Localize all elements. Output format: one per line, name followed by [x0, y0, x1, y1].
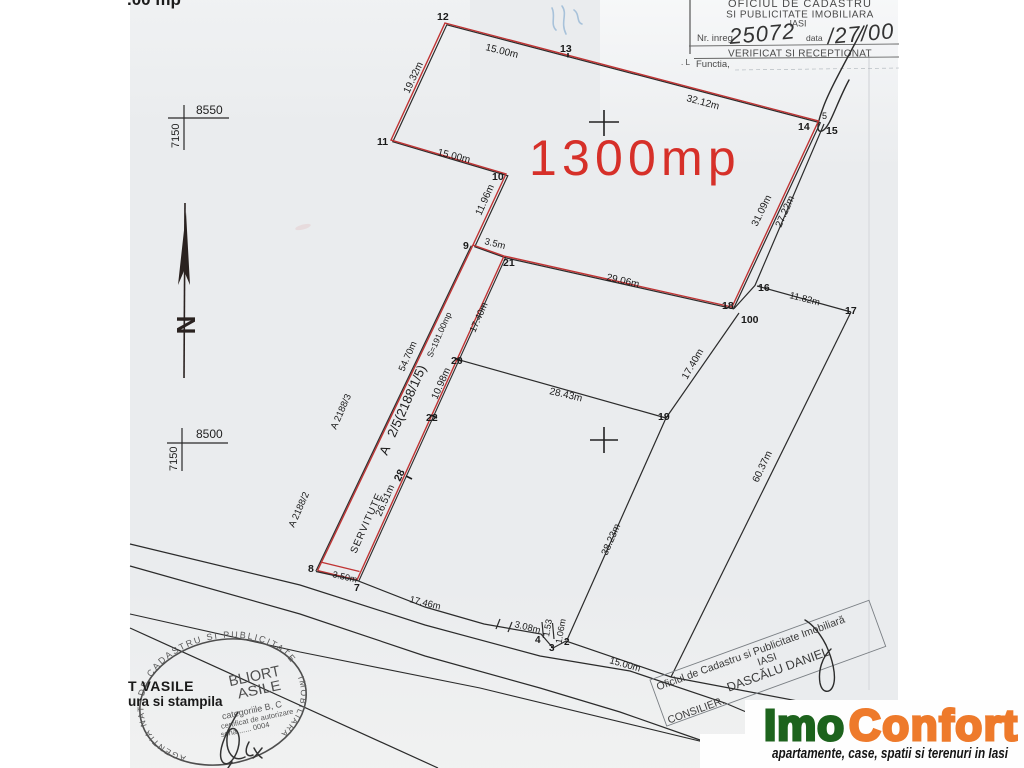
svg-text:22: 22	[426, 412, 438, 424]
svg-text:11: 11	[377, 136, 388, 148]
svg-text:15.00m: 15.00m	[436, 147, 471, 166]
svg-text:Nr. inreg: Nr. inreg	[697, 33, 733, 44]
svg-text:60.37m: 60.37m	[751, 449, 775, 484]
svg-text:17.46m: 17.46m	[408, 594, 441, 612]
svg-text:10.98m: 10.98m	[430, 366, 454, 401]
svg-text:17.40m: 17.40m	[680, 347, 706, 381]
svg-text:14: 14	[798, 121, 810, 133]
svg-text:32.12m: 32.12m	[685, 93, 720, 112]
svg-text:28.43m: 28.43m	[548, 386, 583, 404]
svg-text:Imo: Imo	[764, 701, 844, 750]
svg-text:1.53: 1.53	[541, 618, 554, 637]
svg-text:3.50m: 3.50m	[332, 569, 359, 584]
svg-text:A 2188/3: A 2188/3	[329, 392, 354, 431]
svg-text:16: 16	[758, 282, 770, 294]
svg-text:Functia,: Functia,	[696, 59, 730, 70]
svg-text:3.08m: 3.08m	[513, 619, 541, 636]
svg-text:9: 9	[463, 240, 469, 252]
svg-text:8500: 8500	[196, 427, 223, 441]
svg-text:7150: 7150	[170, 124, 182, 148]
svg-text:15.00m: 15.00m	[484, 42, 519, 61]
svg-text:5: 5	[822, 111, 827, 121]
svg-text:12: 12	[437, 11, 449, 23]
svg-text:18: 18	[722, 300, 734, 312]
svg-text:CONSILIER.: CONSILIER.	[666, 695, 726, 727]
svg-text:N: N	[171, 316, 201, 335]
svg-text:Confort: Confort	[849, 701, 1017, 750]
svg-text:8550: 8550	[196, 103, 223, 117]
svg-text:17: 17	[845, 305, 857, 317]
svg-text:. L: . L	[681, 58, 690, 67]
svg-text:1300mp: 1300mp	[529, 130, 741, 186]
svg-text:7150: 7150	[168, 447, 180, 471]
svg-text:20: 20	[451, 355, 463, 367]
svg-text:27.22m: 27.22m	[774, 194, 798, 229]
svg-text:21: 21	[503, 257, 515, 269]
svg-text:apartamente, case, spatii si t: apartamente, case, spatii si terenuri in…	[772, 745, 1009, 762]
svg-text:data: data	[806, 33, 823, 43]
svg-text:.00 mp: .00 mp	[127, 0, 181, 9]
svg-text:100: 100	[741, 314, 759, 326]
svg-text:SERVITUTE: SERVITUTE	[349, 491, 385, 555]
svg-text:ura si stampila: ura si stampila	[128, 694, 223, 709]
svg-text:13: 13	[560, 43, 572, 55]
svg-text:19: 19	[658, 411, 670, 423]
svg-text:OFICIUL DE CADASTRU: OFICIUL DE CADASTRU	[728, 0, 872, 10]
svg-text:3: 3	[549, 643, 555, 654]
svg-text:4: 4	[535, 635, 541, 646]
svg-text:10: 10	[492, 171, 504, 183]
svg-text:15.00m: 15.00m	[608, 655, 642, 674]
svg-text:8: 8	[308, 563, 314, 575]
svg-text:2: 2	[564, 637, 570, 648]
svg-text:15: 15	[826, 125, 838, 137]
svg-text:T VASILE: T VASILE	[128, 678, 194, 694]
svg-text:38.23m: 38.23m	[600, 522, 624, 557]
svg-text:17.40m: 17.40m	[468, 301, 491, 335]
svg-text:29.06m: 29.06m	[605, 272, 640, 290]
svg-text:28: 28	[392, 467, 408, 483]
svg-text:25072: 25072	[727, 18, 796, 49]
svg-text:11.82m: 11.82m	[788, 290, 821, 308]
svg-text:A 2188/2: A 2188/2	[287, 490, 312, 529]
